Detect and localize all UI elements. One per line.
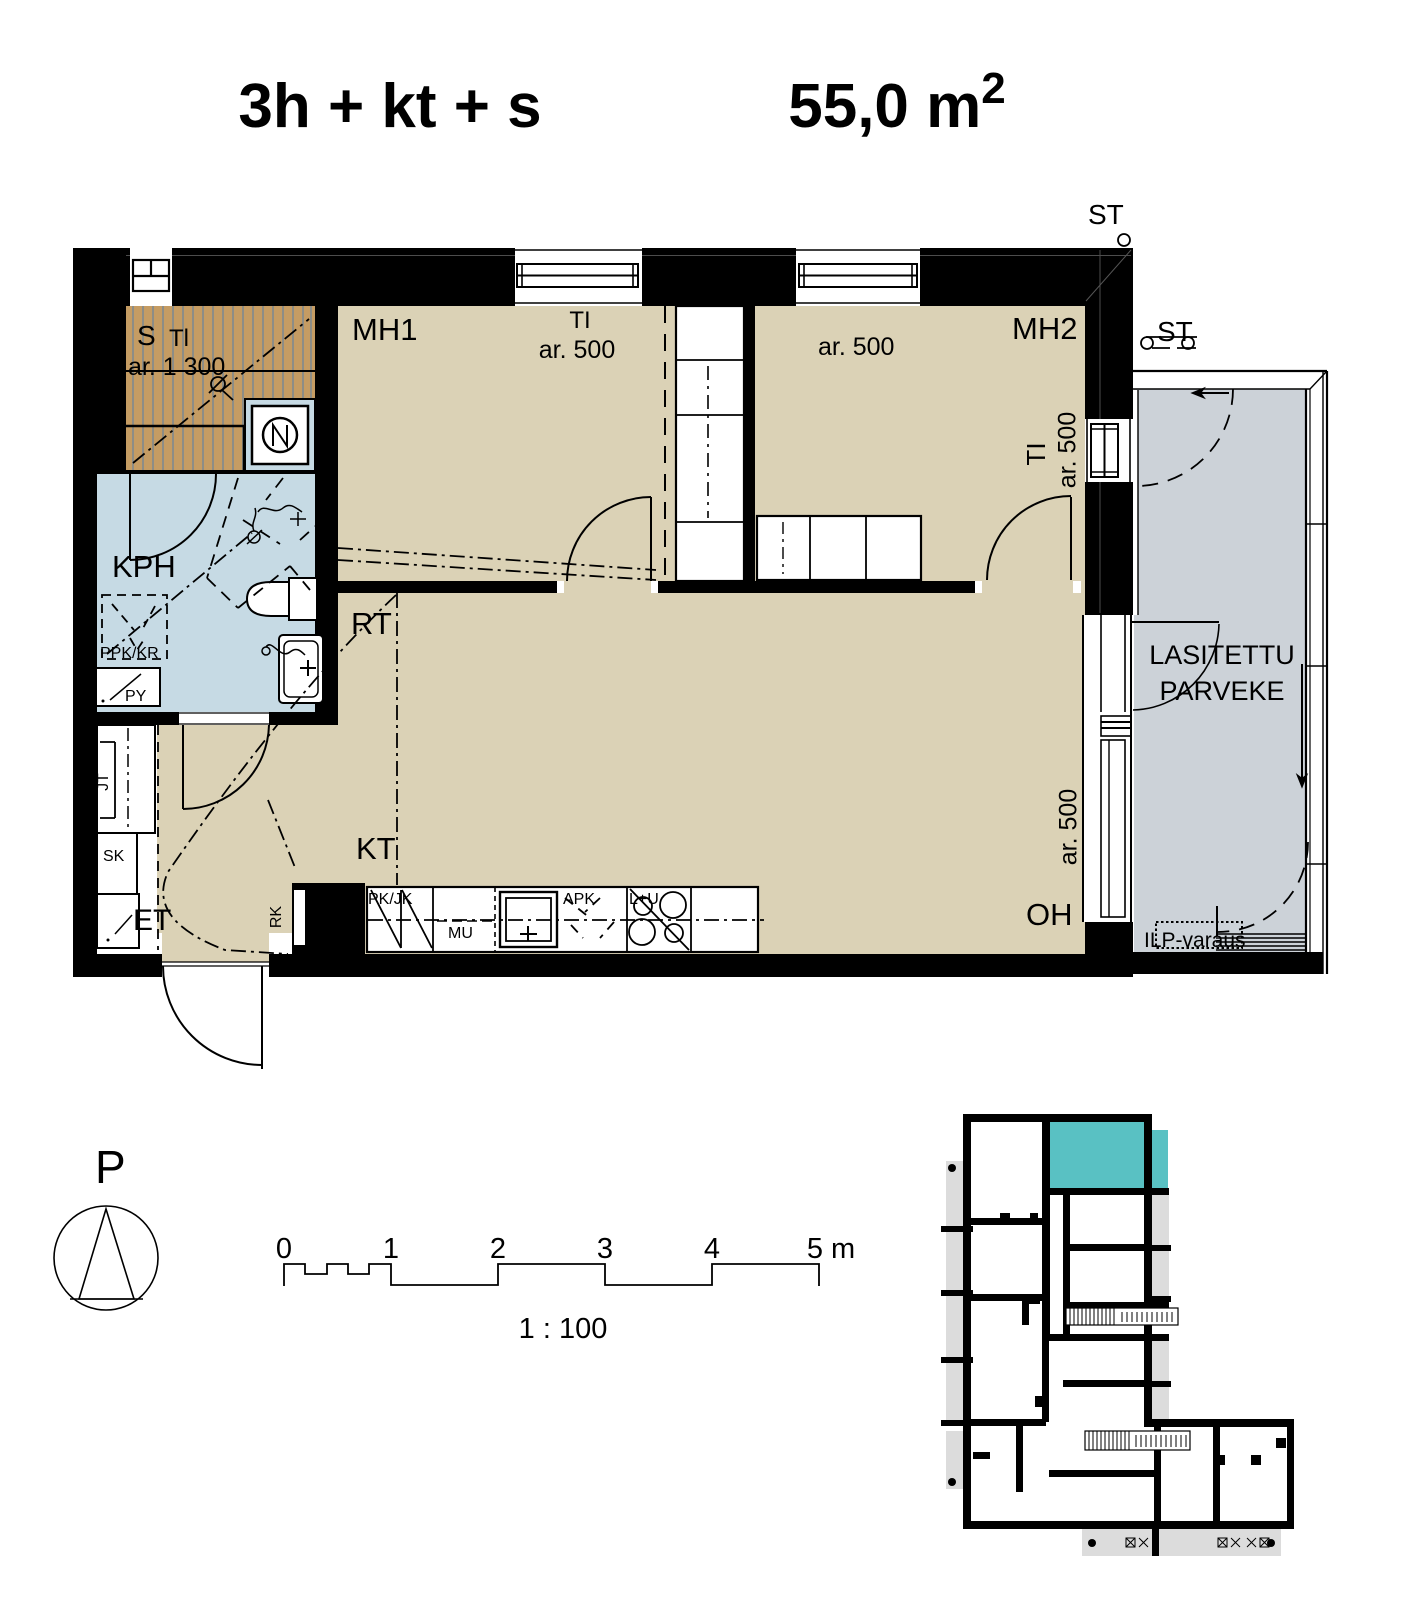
svg-text:ar. 500: ar. 500 [1055, 789, 1083, 865]
svg-text:OH: OH [1026, 897, 1073, 932]
svg-text:4: 4 [704, 1233, 720, 1265]
svg-text:0: 0 [276, 1233, 292, 1265]
svg-text:PPK/KR: PPK/KR [100, 645, 159, 662]
svg-text:TI: TI [1021, 442, 1051, 465]
svg-text:KPH: KPH [112, 549, 176, 584]
svg-text:MU: MU [448, 925, 473, 942]
svg-text:ar. 500: ar. 500 [818, 333, 894, 361]
svg-text:RK: RK [268, 906, 285, 929]
svg-text:KT: KT [356, 831, 396, 866]
svg-text:S: S [137, 320, 156, 351]
svg-text:ILP-varaus: ILP-varaus [1144, 929, 1246, 952]
svg-text:ar. 1 300: ar. 1 300 [128, 353, 225, 381]
svg-text:PY: PY [125, 688, 147, 705]
svg-text:JT: JT [95, 773, 112, 791]
svg-text:ar. 500: ar. 500 [1054, 412, 1082, 488]
svg-text:3: 3 [597, 1233, 613, 1265]
svg-text:2: 2 [490, 1233, 506, 1265]
svg-text:RT: RT [351, 606, 392, 641]
svg-text:ET: ET [133, 904, 171, 937]
svg-text:Tl: Tl [169, 325, 189, 352]
svg-text:ST: ST [1157, 316, 1193, 347]
svg-text:APK: APK [563, 891, 595, 908]
svg-text:PARVEKE: PARVEKE [1159, 676, 1284, 706]
svg-text:1 : 100: 1 : 100 [519, 1313, 608, 1345]
svg-text:55,0 m2: 55,0 m2 [788, 64, 1006, 141]
svg-text:5 m: 5 m [807, 1233, 855, 1265]
svg-text:3h + kt + s: 3h + kt + s [238, 72, 541, 141]
svg-text:TI: TI [569, 307, 590, 334]
svg-text:LASITETTU: LASITETTU [1149, 640, 1295, 670]
svg-text:ST: ST [1088, 199, 1124, 230]
svg-text:ar. 500: ar. 500 [539, 336, 615, 364]
svg-text:MH1: MH1 [352, 312, 417, 347]
svg-text:PK/JK: PK/JK [368, 891, 413, 908]
svg-text:P: P [95, 1141, 126, 1193]
svg-text:L+U: L+U [629, 891, 659, 908]
svg-text:SK: SK [103, 848, 125, 865]
svg-text:MH2: MH2 [1012, 311, 1077, 346]
svg-text:1: 1 [383, 1233, 399, 1265]
